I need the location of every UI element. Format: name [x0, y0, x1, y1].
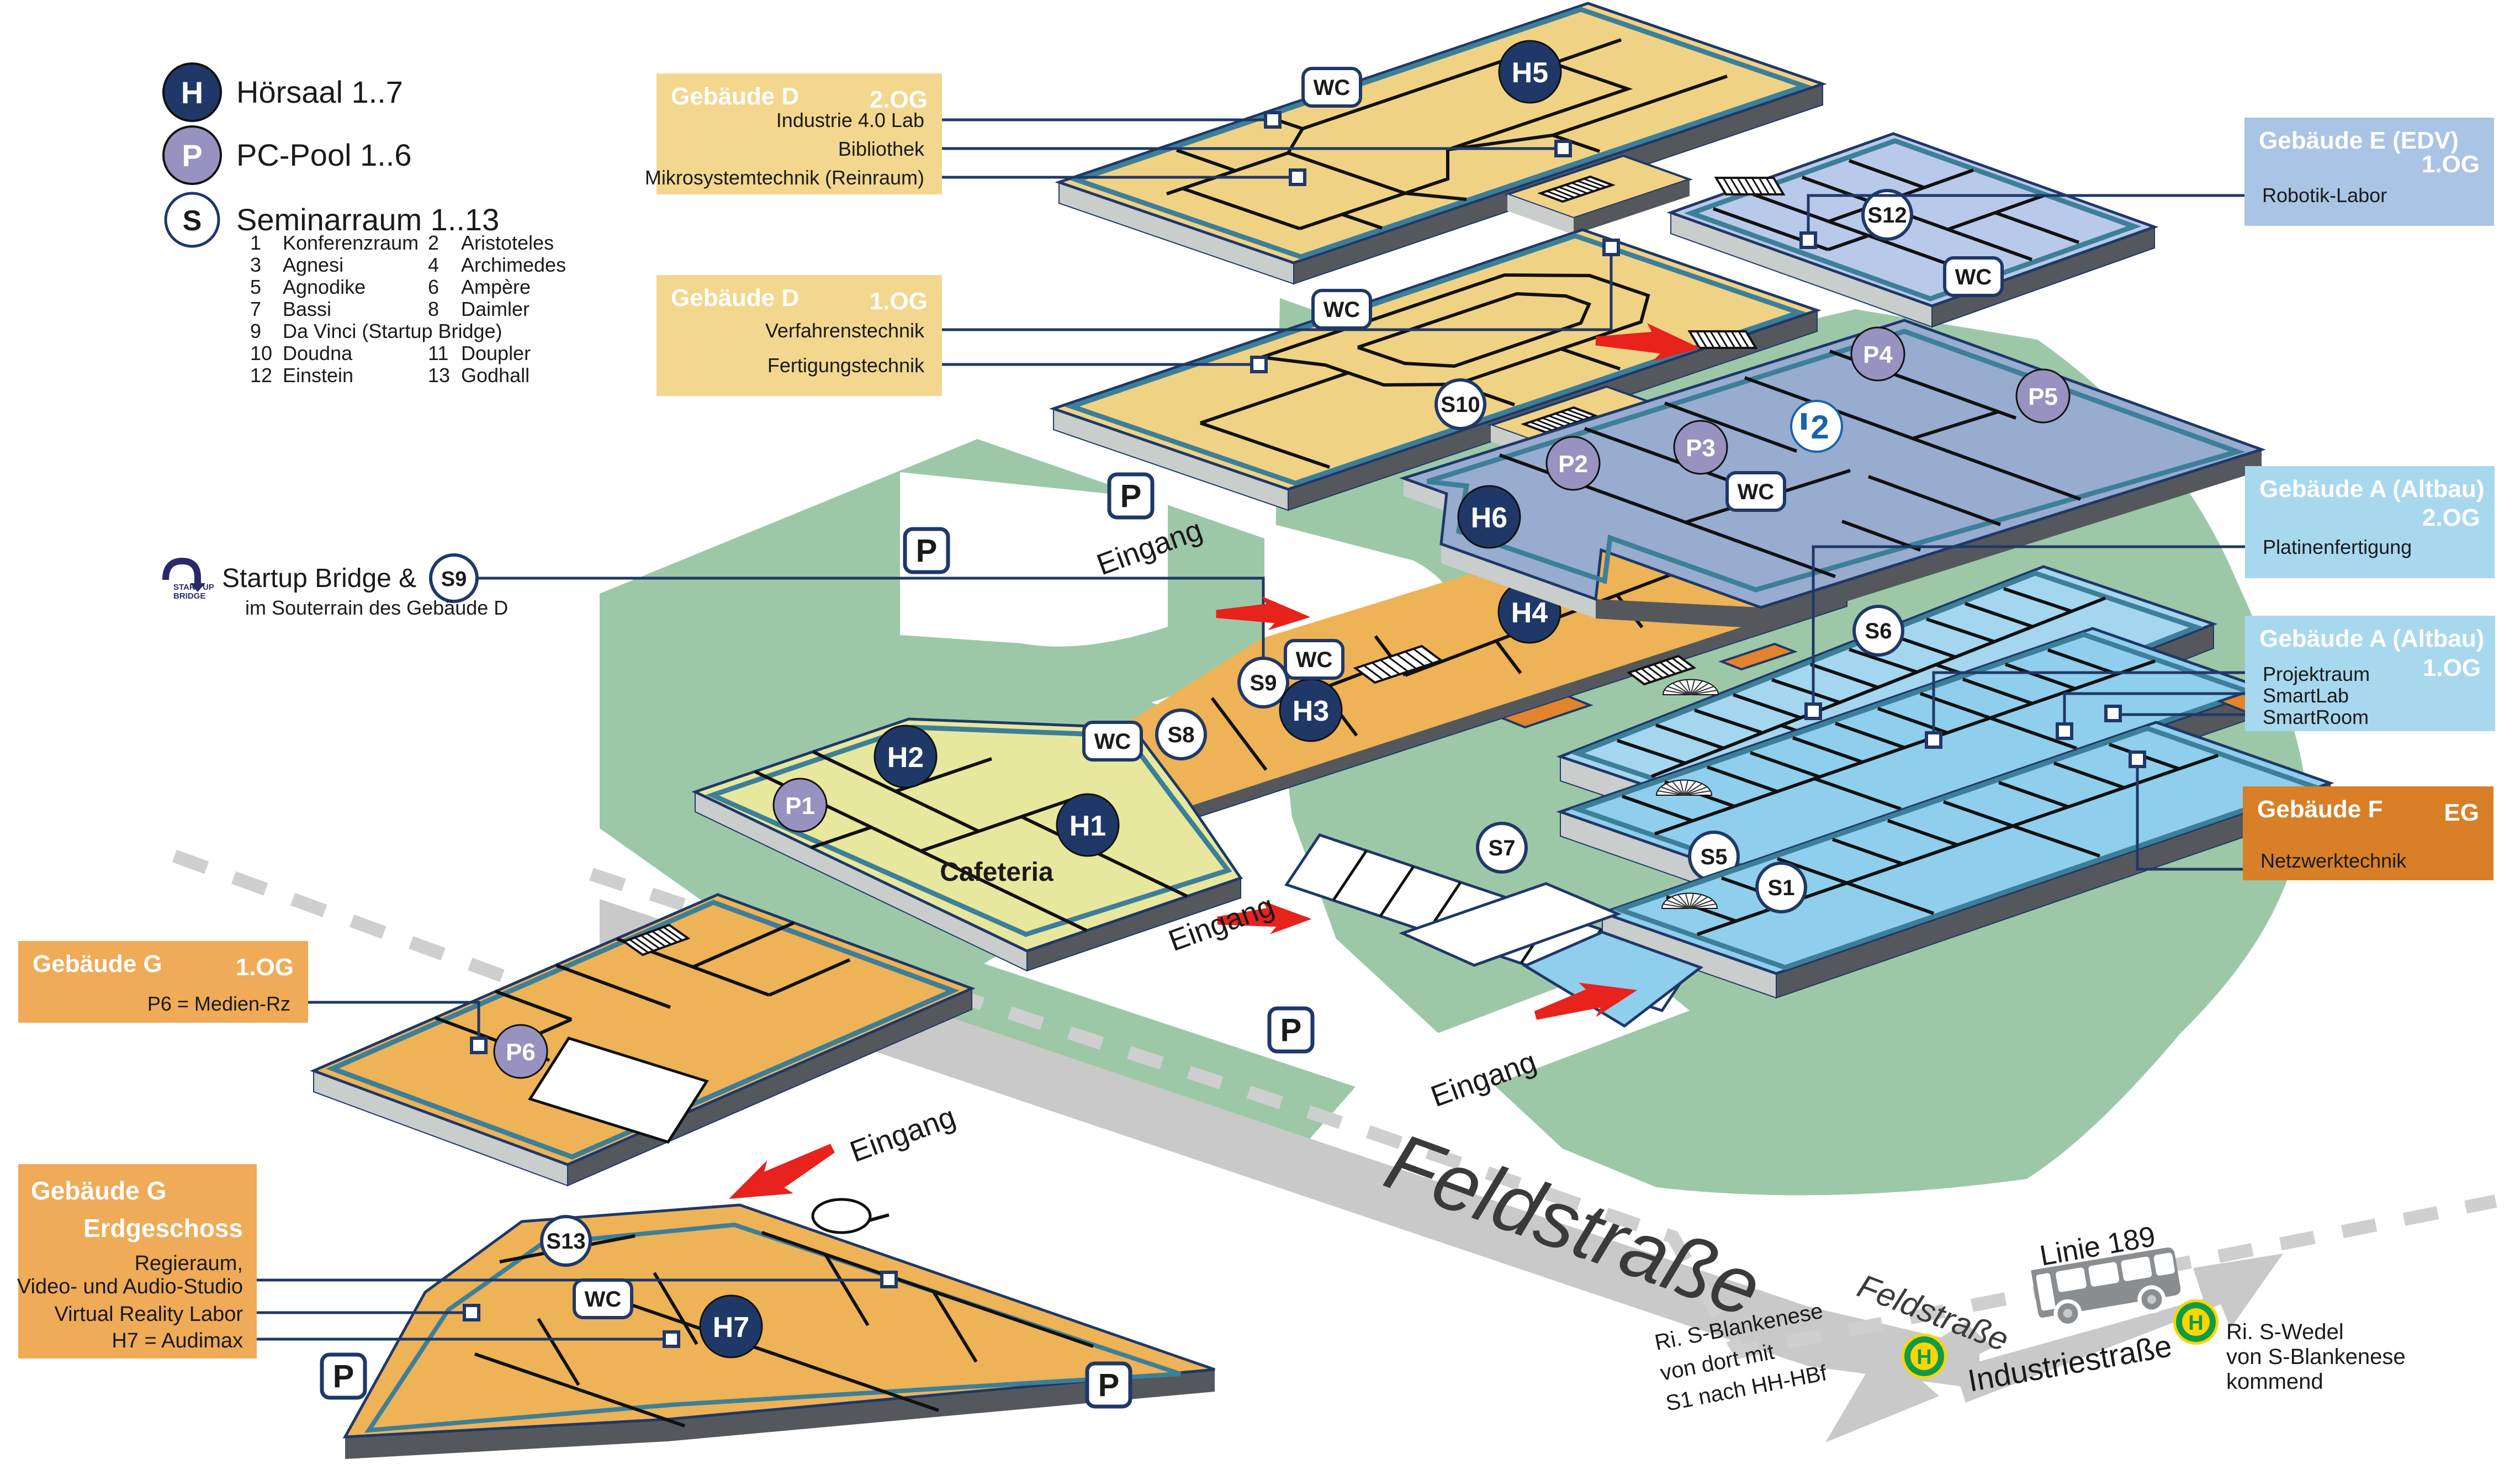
svg-text:WC: WC [1296, 648, 1333, 672]
svg-text:H1: H1 [1070, 810, 1106, 842]
svg-text:7: 7 [250, 298, 261, 320]
svg-text:Gebäude G: Gebäude G [33, 950, 162, 977]
svg-text:Verfahrenstechnik: Verfahrenstechnik [765, 319, 925, 342]
svg-text:Erdgeschoss: Erdgeschoss [83, 1214, 243, 1243]
svg-text:H6: H6 [1471, 502, 1507, 534]
svg-text:von S-Blankenese: von S-Blankenese [2226, 1345, 2406, 1369]
svg-text:P5: P5 [2028, 383, 2058, 410]
svg-text:SmartLab: SmartLab [2263, 684, 2349, 707]
svg-text:Godhall: Godhall [461, 364, 530, 387]
svg-text:Agnesi: Agnesi [283, 253, 343, 276]
svg-text:S: S [183, 205, 202, 237]
svg-text:Video- und Audio-Studio: Video- und Audio-Studio [17, 1275, 243, 1298]
svg-text:Gebäude G: Gebäude G [31, 1176, 166, 1205]
svg-text:H5: H5 [1512, 57, 1548, 89]
svg-text:Ri. S-Wedel: Ri. S-Wedel [2226, 1320, 2344, 1344]
svg-text:12: 12 [250, 364, 272, 387]
svg-text:Konferenzraum: Konferenzraum [283, 231, 419, 254]
svg-text:WC: WC [1738, 480, 1775, 504]
svg-text:S9: S9 [1250, 671, 1277, 695]
svg-text:P4: P4 [1863, 341, 1893, 368]
svg-text:im Souterrain des Gebäude D: im Souterrain des Gebäude D [245, 596, 508, 619]
svg-text:9: 9 [250, 320, 261, 342]
svg-text:P3: P3 [1686, 435, 1716, 462]
svg-text:2.OG: 2.OG [2422, 504, 2480, 531]
svg-text:Archimedes: Archimedes [461, 253, 566, 276]
svg-text:S7: S7 [1489, 836, 1516, 860]
svg-text:WC: WC [1323, 298, 1360, 322]
svg-text:4: 4 [428, 253, 439, 276]
svg-text:H3: H3 [1293, 695, 1329, 727]
svg-text:1.OG: 1.OG [870, 288, 928, 315]
svg-text:Virtual Reality Labor: Virtual Reality Labor [55, 1303, 243, 1326]
svg-text:10: 10 [250, 342, 272, 364]
svg-text:2: 2 [1810, 409, 1829, 446]
svg-text:PC-Pool 1..6: PC-Pool 1..6 [236, 138, 412, 172]
svg-text:Gebäude D: Gebäude D [671, 284, 799, 311]
svg-text:S12: S12 [1867, 203, 1907, 228]
svg-text:Doudna: Doudna [283, 342, 353, 364]
svg-text:Projektraum: Projektraum [2263, 663, 2370, 685]
svg-text:S1: S1 [1768, 876, 1795, 900]
svg-text:P: P [1280, 1012, 1302, 1048]
svg-text:P: P [1098, 1367, 1120, 1403]
svg-text:EG: EG [2444, 799, 2479, 826]
svg-text:BRIDGE: BRIDGE [173, 591, 205, 601]
svg-text:5: 5 [250, 276, 261, 298]
svg-text:6: 6 [428, 276, 439, 298]
svg-text:Gebäude A (Altbau): Gebäude A (Altbau) [2259, 625, 2484, 652]
svg-text:Bibliothek: Bibliothek [838, 138, 925, 160]
svg-text:1: 1 [250, 231, 261, 254]
svg-text:3: 3 [250, 253, 261, 276]
svg-text:Regieraum,: Regieraum, [135, 1252, 243, 1275]
svg-text:Fertigungstechnik: Fertigungstechnik [767, 354, 925, 377]
svg-text:H: H [1917, 1346, 1931, 1369]
svg-text:Gebäude D: Gebäude D [671, 83, 799, 110]
svg-text:1.OG: 1.OG [2422, 151, 2480, 178]
svg-text:8: 8 [428, 298, 439, 320]
svg-text:2: 2 [428, 231, 439, 254]
svg-text:Daimler: Daimler [461, 298, 530, 320]
svg-text:START UP: START UP [173, 583, 214, 592]
svg-text:SmartRoom: SmartRoom [2263, 706, 2369, 728]
svg-text:H: H [181, 75, 203, 110]
svg-text:Gebäude E (EDV): Gebäude E (EDV) [2259, 127, 2459, 154]
svg-text:P2: P2 [1558, 451, 1588, 478]
svg-text:Agnodike: Agnodike [283, 276, 366, 298]
svg-text:Doupler: Doupler [461, 342, 531, 364]
svg-text:Gebäude F: Gebäude F [2257, 796, 2383, 823]
svg-text:S5: S5 [1701, 845, 1728, 869]
svg-text:H7: H7 [713, 1312, 749, 1344]
svg-text:Robotik-Labor: Robotik-Labor [2262, 184, 2387, 207]
svg-text:H2: H2 [887, 742, 924, 774]
svg-text:Aristoteles: Aristoteles [461, 231, 554, 254]
svg-text:Cafeteria: Cafeteria [940, 858, 1053, 887]
svg-text:WC: WC [1955, 265, 1992, 289]
svg-text:kommend: kommend [2226, 1370, 2323, 1394]
svg-text:Platinenfertigung: Platinenfertigung [2263, 536, 2412, 558]
svg-text:11: 11 [428, 342, 448, 364]
svg-text:P: P [916, 533, 938, 569]
svg-text:H4: H4 [1511, 597, 1548, 629]
svg-text:P6: P6 [506, 1039, 536, 1066]
svg-text:P: P [333, 1358, 354, 1394]
svg-text:Industrie 4.0 Lab: Industrie 4.0 Lab [776, 109, 924, 131]
svg-text:Bassi: Bassi [283, 298, 331, 320]
svg-text:Startup Bridge &: Startup Bridge & [222, 564, 416, 593]
svg-text:13: 13 [428, 364, 450, 387]
svg-text:S13: S13 [546, 1229, 585, 1254]
svg-text:WC: WC [1314, 76, 1351, 100]
svg-text:P6 = Medien-Rz: P6 = Medien-Rz [147, 992, 290, 1015]
svg-text:Ampère: Ampère [461, 276, 531, 298]
svg-text:H7 = Audimax: H7 = Audimax [112, 1329, 243, 1352]
svg-text:Einstein: Einstein [283, 364, 353, 387]
svg-text:H: H [2188, 1312, 2203, 1335]
svg-text:WC: WC [585, 1287, 622, 1312]
svg-text:Netzwerktechnik: Netzwerktechnik [2260, 849, 2407, 872]
svg-text:S10: S10 [1441, 393, 1480, 417]
svg-text:Da Vinci (Startup Bridge): Da Vinci (Startup Bridge) [283, 320, 502, 342]
svg-text:1.OG: 1.OG [2423, 654, 2481, 681]
svg-text:P: P [1120, 478, 1142, 514]
svg-text:Gebäude A (Altbau): Gebäude A (Altbau) [2259, 475, 2484, 503]
svg-text:Mikrosystemtechnik (Reinraum): Mikrosystemtechnik (Reinraum) [645, 166, 924, 189]
svg-text:S9: S9 [441, 568, 467, 591]
svg-text:1.OG: 1.OG [236, 954, 294, 981]
svg-text:P1: P1 [785, 792, 815, 820]
svg-text:WC: WC [1094, 729, 1131, 754]
svg-text:S6: S6 [1865, 619, 1892, 643]
svg-text:P: P [182, 138, 202, 173]
svg-text:Hörsaal 1..7: Hörsaal 1..7 [236, 75, 403, 109]
svg-text:S8: S8 [1168, 723, 1195, 747]
